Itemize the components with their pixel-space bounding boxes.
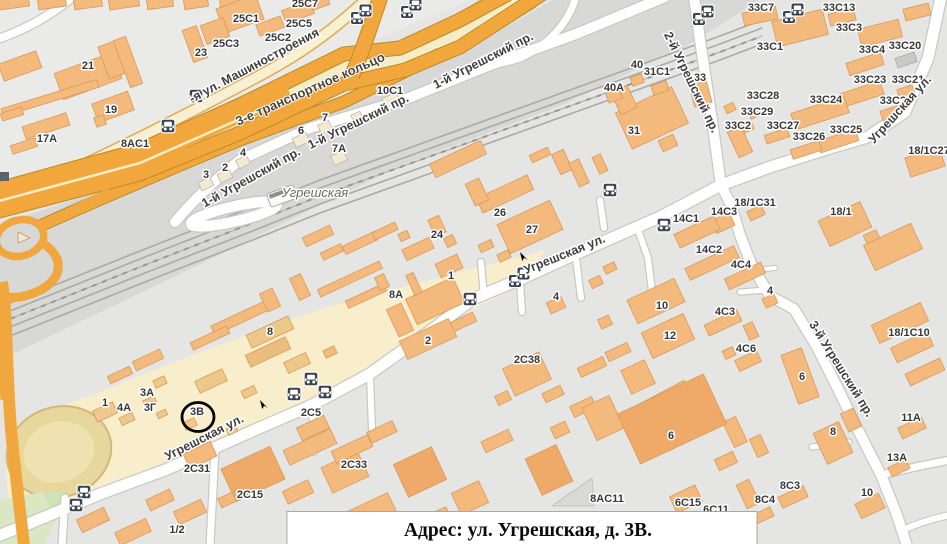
svg-text:6: 6 <box>799 371 805 383</box>
svg-text:18/1C27: 18/1C27 <box>908 145 947 157</box>
svg-text:40: 40 <box>631 59 643 71</box>
svg-text:1: 1 <box>102 397 108 409</box>
svg-text:Адрес: ул. Угрешская, д. 3В.: Адрес: ул. Угрешская, д. 3В. <box>404 520 652 541</box>
svg-text:12: 12 <box>664 330 676 342</box>
svg-text:2C15: 2C15 <box>237 489 263 501</box>
svg-text:8: 8 <box>267 326 273 338</box>
svg-text:8A: 8A <box>389 289 403 301</box>
svg-text:33C23: 33C23 <box>854 74 886 86</box>
svg-text:40A: 40A <box>604 82 624 94</box>
svg-text:8C4: 8C4 <box>755 494 776 506</box>
svg-text:3: 3 <box>203 169 209 181</box>
svg-text:23: 23 <box>195 47 207 59</box>
svg-text:14C1: 14C1 <box>673 213 699 225</box>
svg-text:3A: 3A <box>140 387 154 399</box>
svg-text:17A: 17A <box>37 133 57 145</box>
svg-text:33C26: 33C26 <box>793 131 825 143</box>
svg-text:2: 2 <box>222 162 228 174</box>
svg-text:13A: 13A <box>887 452 907 464</box>
svg-text:3В: 3В <box>190 406 204 418</box>
svg-text:27: 27 <box>526 224 538 236</box>
svg-text:4: 4 <box>553 291 560 303</box>
svg-text:26: 26 <box>494 207 506 219</box>
svg-text:33C24: 33C24 <box>810 94 843 106</box>
svg-text:2C33: 2C33 <box>341 459 367 471</box>
svg-text:33C4: 33C4 <box>859 44 886 56</box>
svg-text:33C2: 33C2 <box>725 120 751 132</box>
svg-text:33C20: 33C20 <box>889 40 921 52</box>
svg-text:21: 21 <box>82 60 94 72</box>
svg-text:33C25: 33C25 <box>830 124 862 136</box>
svg-text:6: 6 <box>668 430 674 442</box>
svg-text:14C2: 14C2 <box>696 244 722 256</box>
svg-text:10: 10 <box>656 300 668 312</box>
svg-text:18/1C10: 18/1C10 <box>888 327 930 339</box>
svg-text:33C1: 33C1 <box>757 41 783 53</box>
svg-text:25C3: 25C3 <box>213 38 239 50</box>
svg-text:31C1: 31C1 <box>644 66 670 78</box>
svg-text:2C5: 2C5 <box>301 407 321 419</box>
svg-text:2: 2 <box>425 335 431 347</box>
svg-text:6: 6 <box>298 125 304 137</box>
svg-text:Угрешская: Угрешская <box>281 185 349 200</box>
svg-text:33C7: 33C7 <box>748 2 774 14</box>
svg-text:25C7: 25C7 <box>292 0 318 10</box>
svg-text:7: 7 <box>322 112 328 124</box>
svg-text:33C29: 33C29 <box>741 106 773 118</box>
svg-text:24: 24 <box>431 229 444 241</box>
svg-text:7A: 7A <box>332 143 346 155</box>
svg-text:1/2: 1/2 <box>169 524 184 536</box>
svg-text:33C28: 33C28 <box>747 90 779 102</box>
svg-text:8AC11: 8AC11 <box>590 493 624 505</box>
svg-text:14C3: 14C3 <box>711 206 737 218</box>
svg-text:4C4: 4C4 <box>731 259 752 271</box>
svg-text:18/1C31: 18/1C31 <box>734 197 776 209</box>
svg-text:33C13: 33C13 <box>823 2 855 14</box>
svg-text:8: 8 <box>830 426 836 438</box>
svg-text:2C38: 2C38 <box>514 354 540 366</box>
svg-text:1: 1 <box>448 270 454 282</box>
svg-text:18/1: 18/1 <box>830 206 851 218</box>
svg-text:4C3: 4C3 <box>715 306 735 318</box>
svg-text:10: 10 <box>861 487 873 499</box>
svg-text:6C15: 6C15 <box>675 497 701 509</box>
svg-text:4: 4 <box>240 147 247 159</box>
svg-text:33C3: 33C3 <box>836 22 862 34</box>
svg-text:8C3: 8C3 <box>780 480 800 492</box>
svg-text:8AC1: 8AC1 <box>121 138 149 150</box>
svg-text:4C6: 4C6 <box>736 343 756 355</box>
svg-text:11A: 11A <box>901 412 921 424</box>
svg-text:3Г: 3Г <box>144 402 157 414</box>
svg-text:19: 19 <box>105 104 117 116</box>
svg-text:4: 4 <box>767 285 774 297</box>
svg-text:25C1: 25C1 <box>233 13 259 25</box>
svg-text:31: 31 <box>628 125 640 137</box>
svg-text:4A: 4A <box>117 402 131 414</box>
svg-text:2C31: 2C31 <box>184 463 210 475</box>
